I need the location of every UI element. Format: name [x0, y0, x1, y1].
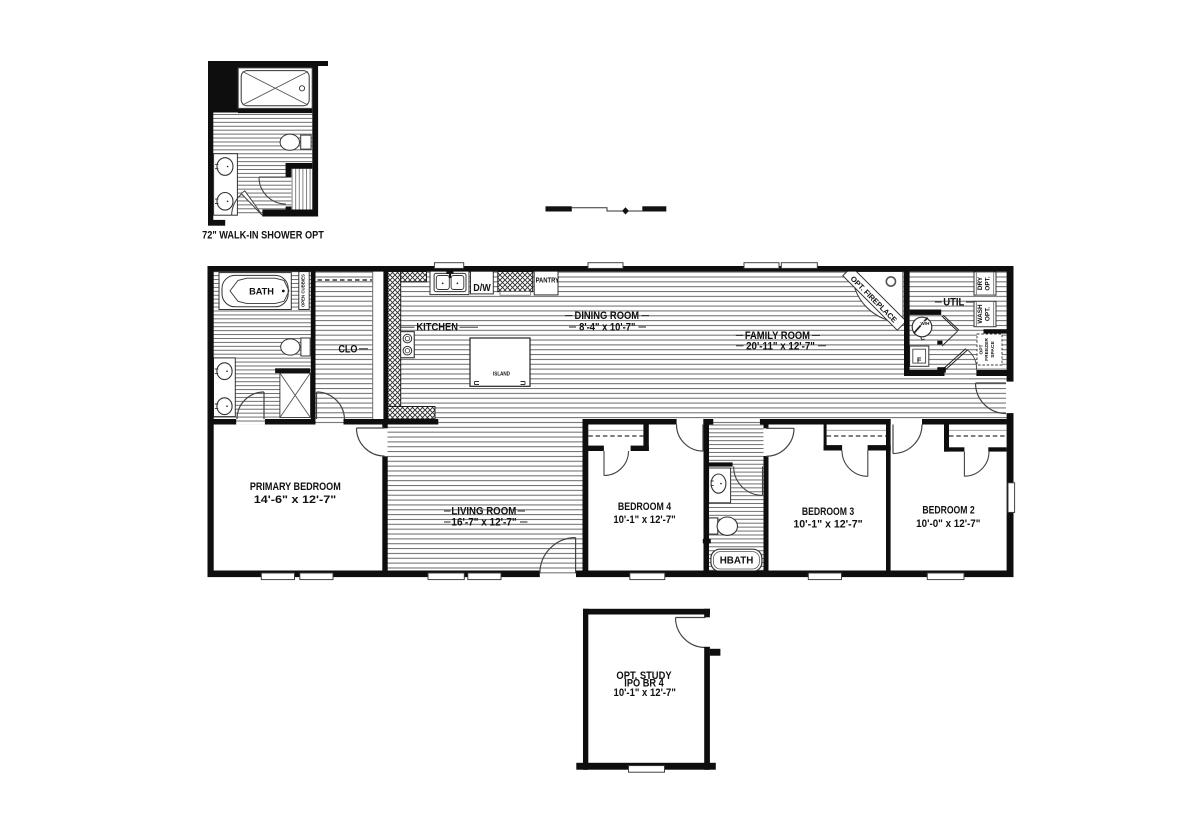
svg-text:BEDROOM 3: BEDROOM 3 — [802, 506, 855, 518]
svg-text:W/H: W/H — [921, 321, 931, 326]
svg-text:10'-0" x 12'-7": 10'-0" x 12'-7" — [916, 519, 980, 530]
svg-text:F: F — [917, 357, 922, 364]
svg-text:DRY: DRY — [977, 276, 984, 290]
svg-text:D/W: D/W — [473, 282, 491, 294]
svg-text:10'-1" x 12'-7": 10'-1" x 12'-7" — [613, 515, 676, 527]
svg-text:HBATH: HBATH — [720, 556, 754, 567]
svg-text:BEDROOM 4: BEDROOM 4 — [618, 501, 672, 513]
svg-text:10'-1" x 12'-7": 10'-1" x 12'-7" — [793, 519, 862, 531]
svg-text:FREEZER: FREEZER — [984, 338, 990, 361]
svg-text:72" WALK-IN SHOWER OPT: 72" WALK-IN SHOWER OPT — [202, 230, 324, 242]
svg-text:20'-11" x 12'-7": 20'-11" x 12'-7" — [746, 341, 815, 352]
svg-text:BEDROOM 2: BEDROOM 2 — [922, 505, 974, 517]
svg-text:OPEN CUBBIES: OPEN CUBBIES — [300, 274, 305, 307]
svg-text:DINING ROOM: DINING ROOM — [575, 311, 639, 323]
svg-text:OPT: OPT — [978, 344, 984, 354]
svg-text:BATH: BATH — [249, 287, 274, 297]
svg-text:WASH: WASH — [977, 304, 984, 324]
svg-text:PRIMARY BEDROOM: PRIMARY BEDROOM — [250, 482, 341, 494]
svg-text:14'-6" x 12'-7": 14'-6" x 12'-7" — [254, 494, 336, 506]
svg-text:OPT.: OPT. — [984, 276, 991, 290]
svg-text:8'-4" x 10'-7": 8'-4" x 10'-7" — [579, 322, 636, 334]
svg-text:CLO: CLO — [338, 344, 357, 356]
svg-text:LIVING ROOM: LIVING ROOM — [451, 506, 516, 517]
svg-text:16'-7" x 12'-7": 16'-7" x 12'-7" — [451, 517, 516, 528]
svg-text:UTIL: UTIL — [943, 297, 964, 309]
svg-text:ISLAND: ISLAND — [493, 371, 510, 378]
svg-text:SPACE: SPACE — [990, 341, 996, 358]
svg-text:PANTRY: PANTRY — [536, 277, 560, 285]
svg-text:10'-1" x 12'-7": 10'-1" x 12'-7" — [614, 687, 677, 699]
svg-text:KITCHEN: KITCHEN — [416, 322, 458, 334]
svg-text:OPT.: OPT. — [984, 307, 991, 321]
